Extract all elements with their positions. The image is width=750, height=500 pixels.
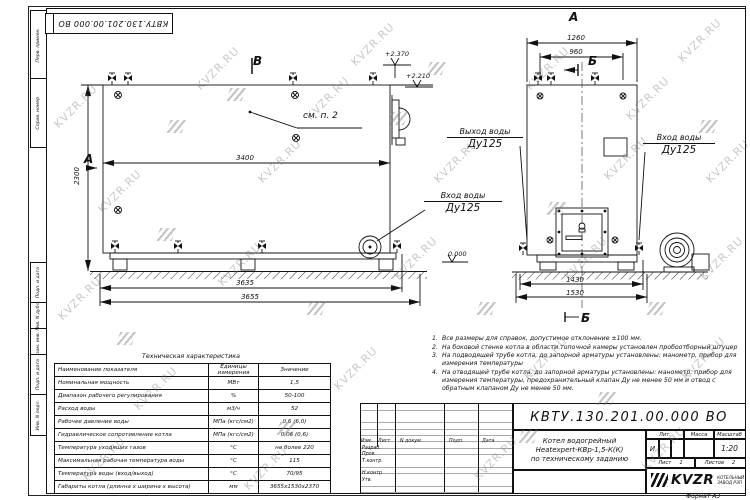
inlet-label-text: Вход воды [643, 133, 715, 144]
param-name: Диапазон рабочего регулирования [55, 390, 209, 403]
col-header-data: Дата [482, 439, 494, 444]
dim-3400: 3400 [225, 154, 265, 162]
company-logo-row: KVZR КОТЕЛЬНЫЙ ЗАВОД РЭП [651, 472, 744, 488]
param-unit: °С [209, 468, 259, 481]
param-value: не более 220 [259, 442, 331, 455]
dim-3655: 3655 [230, 293, 270, 301]
table-row: Рабочее давление водыМПа (кгс/см2)0,6 (6… [55, 416, 331, 429]
inlet-label-dn: Ду125 [643, 144, 715, 156]
sheet-label: Лист [658, 460, 671, 466]
elevation-zero: 0.000 [448, 250, 467, 258]
frame-label: Взам. инв. N [36, 327, 41, 357]
note-item: 1.Все размеры для справок, допустимое от… [432, 335, 745, 343]
param-name: Габариты котла (длинна х ширина х высота… [55, 481, 209, 494]
param-value: 3655х1530х2370 [259, 481, 331, 494]
table-row: Расход водым3/ч52 [55, 403, 331, 416]
note-item: 4.На отводящей трубе котла, до запорной … [432, 369, 745, 393]
note-text: Все размеры для справок, допустимое откл… [442, 335, 745, 343]
col-header-izm: Изм. [361, 439, 372, 444]
note-text: На боковой стенке котла в области топочн… [442, 344, 745, 352]
scale-value: 1:20 [713, 438, 746, 459]
inlet-leader [639, 152, 645, 240]
table-row: Максимальная рабочая температура воды°С1… [55, 455, 331, 468]
document-name: Котел водогрейный Heatexpert-КВр-1,5-К(К… [512, 429, 647, 471]
row-label-nkontr: Н.контр. [362, 471, 383, 476]
title-block-revision-grid [360, 403, 514, 494]
note-item: 3.На подводящей трубе котла, до запорной… [432, 352, 745, 368]
lifting-lug-icon [115, 92, 300, 214]
section-mark-b-bottom [565, 312, 579, 322]
boiler-body-side [103, 85, 390, 253]
empty-cell [512, 469, 647, 494]
inlet-label-side: Вход воды Ду125 [424, 191, 502, 214]
param-name: Температура уходящих газов [55, 442, 209, 455]
callout-see-p2: см. п. 2 [303, 111, 338, 121]
table-row: Номинальная мощностьМВт1,5 [55, 377, 331, 390]
param-name: Рабочее давление воды [55, 416, 209, 429]
frame-cell-podp-data-1: Подп. и дата [30, 262, 47, 304]
dim-1530: 1530 [557, 289, 593, 297]
param-value: 1,5 [259, 377, 331, 390]
grid-line [478, 403, 479, 492]
param-name: Расход воды [55, 403, 209, 416]
sheets-value: 2 [732, 460, 735, 466]
inlet-label-text: Вход воды [424, 191, 502, 202]
frame-cell-podp-data-2: Подп. и дата [30, 354, 47, 396]
doc-name-line: Котел водогрейный [543, 437, 617, 446]
note-item: 2.На боковой стенке котла в области топо… [432, 344, 745, 352]
doc-name-line: по техническому заданию [531, 455, 628, 464]
param-value: 0,6 (6,0) [259, 416, 331, 429]
param-value: 115 [259, 455, 331, 468]
table-row: Температура воды (вход/выход)°С70/95 [55, 468, 331, 481]
frame-label: Перв. примен. [36, 28, 41, 63]
blower-fan [660, 233, 709, 272]
param-name: Максимальная рабочая температура воды [55, 455, 209, 468]
valve-icon [519, 73, 643, 255]
format-label: Формат А3 [686, 493, 720, 500]
mass-cell [683, 438, 715, 459]
dim-1260: 1260 [558, 34, 594, 42]
ground-hatch [512, 273, 708, 280]
spec-table-title: Техническая характеристика [54, 353, 328, 360]
outlet-leader [520, 146, 527, 240]
frame-label: Подп. и дата [36, 359, 41, 390]
grid-line [395, 403, 396, 492]
param-name: Гидравлическое сопротивление котла [55, 429, 209, 442]
kvzr-logo-text: KVZR [671, 472, 714, 488]
note-number: 2. [432, 344, 442, 352]
table-row: Температура уходящих газов°Сне более 220 [55, 442, 331, 455]
section-mark-b-top [564, 64, 578, 76]
company-name-line: ЗАВОД РЭП [717, 480, 744, 485]
note-number: 1. [432, 335, 442, 343]
param-value: 52 [259, 403, 331, 416]
inlet-label-dn: Ду125 [424, 202, 502, 214]
param-value: 0,06 (0,6) [259, 429, 331, 442]
section-letter-b-top: Б [588, 54, 597, 68]
param-value: 50-100 [259, 390, 331, 403]
dim-1430: 1430 [557, 276, 593, 284]
param-name: Номинальная мощность [55, 377, 209, 390]
row-label-prov: Пров. [362, 452, 376, 457]
company-name: КОТЕЛЬНЫЙ ЗАВОД РЭП [717, 475, 744, 485]
inspection-window [604, 138, 627, 156]
note-number: 3. [432, 352, 442, 368]
frame-label: Подп. и дата [36, 267, 41, 298]
dim-3635: 3635 [225, 279, 265, 287]
col-header-list: Лист [378, 439, 390, 444]
frame-label: Инв. N подл. [36, 400, 41, 430]
ground-hatch [90, 272, 427, 279]
front-view-title: А [569, 10, 578, 24]
side-equipment [392, 95, 410, 145]
kvzr-logo-icon [651, 473, 668, 487]
outlet-label-front: Выход воды Ду125 [447, 127, 523, 150]
row-label-utv: Утв. [362, 478, 372, 483]
table-row: Диапазон рабочего регулирования%50-100 [55, 390, 331, 403]
inlet-flange [359, 210, 425, 258]
view-letter-a-side: А [84, 152, 93, 166]
section-letter-b-bottom: Б [581, 311, 590, 325]
grid-line [444, 403, 445, 492]
param-unit: МВт [209, 377, 259, 390]
table-row: Габариты котла (длинна х ширина х высота… [55, 481, 331, 494]
top-designation-number: КВТУ.130.201.00.000 ВО [58, 19, 168, 28]
top-designation-stamp: КВТУ.130.201.00.000 ВО [53, 13, 173, 34]
table-row: Гидравлическое сопротивление котлаМПа (к… [55, 429, 331, 442]
view-letter-b: В [253, 54, 262, 68]
param-name: Температура воды (вход/выход) [55, 468, 209, 481]
col-header: Значение [259, 364, 331, 377]
row-label-razrab: Разраб. [362, 446, 381, 451]
note-number: 4. [432, 369, 442, 393]
drawing-sheet: Перв. примен. Справ. номер Подп. и дата … [0, 0, 750, 500]
side-view-drawing [55, 38, 440, 313]
frame-cell-vzam-inv: Взам. инв. N [30, 328, 47, 356]
param-unit: % [209, 390, 259, 403]
note-text: На подводящей трубе котла, до запорной а… [442, 352, 745, 368]
param-unit: м3/ч [209, 403, 259, 416]
col-header-ndokum: N докум. [400, 439, 422, 444]
boiler-base-side [110, 253, 396, 270]
elevation-2210: +2.210 [406, 72, 430, 80]
col-header-podp: Подп. [449, 439, 464, 444]
inlet-label-front: Вход воды Ду125 [643, 133, 715, 156]
param-unit: °С [209, 455, 259, 468]
param-unit: мм [209, 481, 259, 494]
param-unit: МПа (кгс/см2) [209, 429, 259, 442]
lifting-lug-icon [537, 93, 626, 243]
frame-cell-inv-dubl: Инв. N дубл. [30, 302, 47, 330]
col-header: Единицы измерения [209, 364, 259, 377]
row-label-tkontr: Т.контр. [362, 459, 383, 464]
param-value: 70/95 [259, 468, 331, 481]
frame-cell-inv-podl: Инв. N подл. [30, 394, 47, 436]
title-block-designation: КВТУ.130.201.00.000 ВО [512, 403, 746, 431]
sheet-value: 1 [679, 460, 682, 466]
dim-2300: 2300 [73, 167, 81, 185]
notes-list: 1.Все размеры для справок, допустимое от… [432, 335, 745, 393]
doc-name-line: Heatexpert-КВр-1,5-К(К) [536, 446, 624, 455]
col-header: Наименование показателя [55, 364, 209, 377]
outlet-label-dn: Ду125 [447, 138, 523, 150]
note-text: На отводящей трубе котла, до запорной ар… [442, 369, 745, 393]
param-unit: °С [209, 442, 259, 455]
sheets-label: Листов [705, 460, 724, 466]
outlet-label-text: Выход воды [447, 127, 523, 138]
frame-label: Справ. номер [36, 97, 41, 130]
spec-table: Наименование показателя Единицы измерени… [54, 363, 331, 494]
elevation-2370: +2.370 [385, 50, 409, 58]
param-unit: МПа (кгс/см2) [209, 416, 259, 429]
table-header-row: Наименование показателя Единицы измерени… [55, 364, 331, 377]
frame-cell-sprav-nomer: Справ. номер [30, 78, 47, 148]
